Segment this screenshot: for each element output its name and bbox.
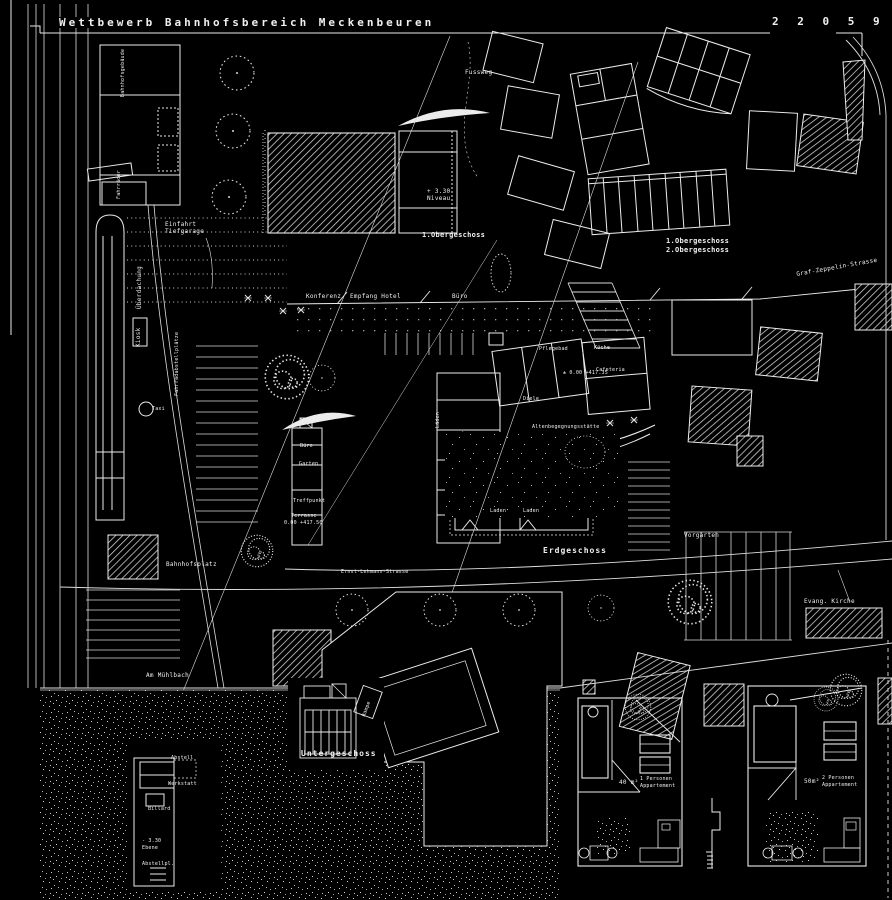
label-evang-kirche: Evang. Kirche <box>804 599 855 605</box>
label-abstellplatz: Abstellpl. <box>142 862 174 867</box>
label-treffpunkt: Treffpunkt <box>293 499 325 504</box>
label-fahrraeder: Fahrräder <box>117 170 122 199</box>
label-laden-2: Laden <box>523 509 539 514</box>
station-buildings <box>100 45 180 205</box>
label-apt1-line1: 1 Personen <box>640 777 672 782</box>
label-terrasse: Terrasse <box>291 514 317 519</box>
building-1og-hatched <box>263 133 395 233</box>
label-bahnhofsgebaeude: Bahnhofsgebäude <box>121 49 126 97</box>
label-fussweg: Fussweg <box>465 70 492 76</box>
label-level-eg: ± 0.00 +417.35 <box>563 371 608 376</box>
label-apt2-line1: 2 Personen <box>822 776 854 781</box>
label-pflegebad: Pflegebad <box>539 347 568 352</box>
label-erdgeschoss: Erdgeschoss <box>543 547 607 555</box>
label-og1-right: 1.Obergeschoss <box>666 238 729 245</box>
label-og2-right: 2.Obergeschoss <box>666 247 729 254</box>
label-taxi: Taxi <box>152 407 165 412</box>
label-billard: Billard <box>148 807 170 812</box>
label-altenbegegnung: Altenbegegnungsstätte <box>532 425 599 430</box>
label-apt2-line2: Appartement <box>822 783 857 788</box>
label-fahrradabstellplaetze: Fahrradabstellplätze <box>175 332 180 396</box>
label-apt2-area: 50m² <box>804 779 820 785</box>
label-apt1-area: 40 m² <box>619 780 639 786</box>
label-ebene-line2: Ebene <box>142 846 158 851</box>
label-untergeschoss: Untergeschoss <box>301 750 377 758</box>
central-complex <box>437 333 655 543</box>
section-marker <box>706 798 720 868</box>
site-plan-drawing <box>0 0 892 900</box>
label-kueche: Küche <box>594 346 610 351</box>
railway-tracks <box>28 4 224 688</box>
label-diele: Diele <box>523 397 539 402</box>
label-laden-1: Laden <box>490 509 506 514</box>
northeast-complex <box>483 28 750 269</box>
label-bahnhofsplatz: Bahnhofsplatz <box>166 562 217 568</box>
label-buero: Büro <box>452 294 468 300</box>
label-ebene-line1: - 3.30 <box>142 839 161 844</box>
label-level-terrasse: 0.00 +417.50 <box>284 521 323 526</box>
label-einfahrt-line2: Tiefgarage <box>165 229 204 235</box>
label-niveau-line2: Niveau <box>427 196 450 202</box>
label-konferenz: Konferenz <box>306 294 341 300</box>
competition-number: 2 2 0 5 9 0 <box>768 16 892 27</box>
site-plan: Wettbewerb Bahnhofsbereich Meckenbeuren … <box>0 0 892 900</box>
label-garten: Garten <box>299 462 318 467</box>
drawing-title: Wettbewerb Bahnhofsbereich Meckenbeuren <box>55 17 438 28</box>
label-laeden: Läden <box>436 412 441 428</box>
building-rooms-top <box>399 131 457 233</box>
vorgaerten-strips <box>684 532 792 640</box>
label-am-muehlbach: Am Mühlbach <box>146 673 189 679</box>
label-ernst-lehmann: Ernst-Lehmann-Strasse <box>341 570 408 575</box>
platform <box>87 163 153 520</box>
label-abstell: Abstell <box>171 756 193 761</box>
workshop-building <box>128 740 220 890</box>
label-werkstatt: Werkstatt <box>168 782 197 787</box>
label-kiosk: Kiosk <box>136 327 142 347</box>
label-apt1-line2: Appartement <box>640 784 675 789</box>
label-empfang-hotel: Empfang Hotel <box>350 294 401 300</box>
label-ueberdachung: Überdachung <box>137 266 143 309</box>
label-buero-klein: Büro <box>300 444 313 449</box>
label-og1-left: 1.Obergeschoss <box>422 232 485 239</box>
label-vorgaerten: Vorgärten <box>684 533 719 539</box>
